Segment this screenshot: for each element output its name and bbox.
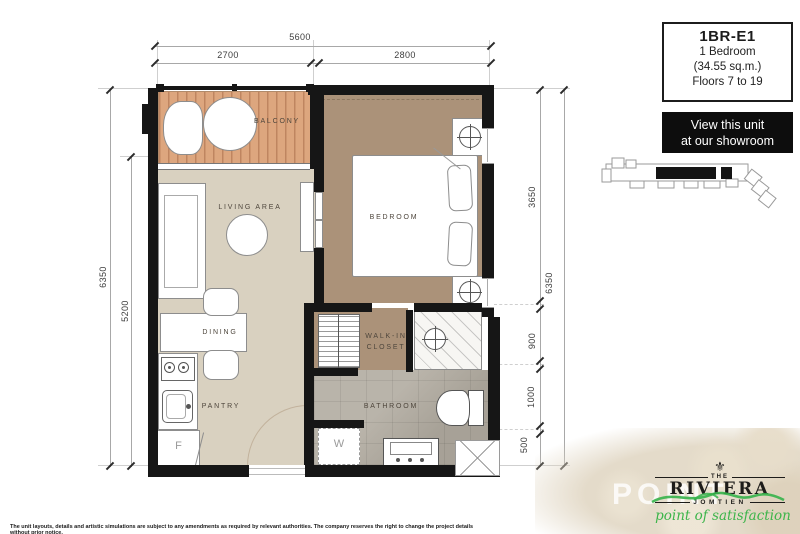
- wall: [308, 85, 494, 95]
- walkin-line1: WALK-IN: [351, 331, 421, 342]
- wardrobe-rod: [338, 314, 339, 368]
- showroom-line2: at our showroom: [662, 133, 793, 149]
- showroom-line1: View this unit: [662, 117, 793, 133]
- entry-threshold: [249, 468, 305, 475]
- ribbon-swoosh: [648, 486, 788, 508]
- dimension-line: [564, 90, 565, 467]
- lamp-icon: [459, 281, 481, 303]
- wall: [148, 88, 158, 477]
- living-label: LIVING AREA: [205, 202, 295, 213]
- wall: [148, 465, 249, 477]
- dim-right-seg1: 3650: [527, 177, 537, 217]
- building-key-plan: [600, 150, 795, 210]
- unit-info-box: 1BR-E1 1 Bedroom (34.55 sq.m.) Floors 7 …: [662, 22, 793, 102]
- dining-chair: [203, 288, 239, 316]
- extension-line: [98, 88, 148, 89]
- vanity-knob-icon: [396, 458, 400, 462]
- bathroom-label: BATHROOM: [353, 401, 429, 412]
- dim-left-outer: 6350: [98, 257, 108, 297]
- bedroom-window-mullion: [487, 278, 488, 306]
- dim-top-left: 2700: [198, 50, 258, 60]
- unit-code: 1BR-E1: [664, 28, 791, 45]
- unit-floors: Floors 7 to 19: [664, 75, 791, 90]
- tick: [127, 462, 135, 470]
- bedroom-window: [482, 278, 494, 308]
- wall: [314, 303, 372, 312]
- vanity-knob-icon: [420, 458, 424, 462]
- wall: [304, 303, 314, 370]
- dim-right-outer: 6350: [544, 263, 554, 303]
- wall: [304, 373, 314, 465]
- extension-line: [494, 88, 570, 89]
- coffee-table: [226, 214, 268, 256]
- wall: [314, 93, 324, 192]
- dimension-line: [155, 46, 491, 47]
- tv-console: [300, 182, 314, 252]
- bedroom-label: BEDROOM: [359, 212, 429, 223]
- pillow: [447, 221, 473, 266]
- dim-right-seg4: 500: [519, 425, 529, 465]
- lamp-icon: [459, 126, 481, 148]
- dimension-line: [131, 157, 132, 467]
- wall: [314, 248, 324, 310]
- pantry-label: PANTRY: [191, 401, 251, 412]
- unit-area: (34.55 sq.m.): [664, 60, 791, 75]
- walkin-closet-label: WALK-IN CLOSET: [351, 331, 421, 353]
- wall: [312, 420, 364, 428]
- walkin-line2: CLOSET: [351, 342, 421, 353]
- balcony-chair: [163, 101, 203, 155]
- logo-tagline: point of satisfaction: [648, 508, 798, 524]
- dim-right-seg3: 1000: [526, 377, 536, 417]
- sink-basin: [166, 394, 186, 419]
- bedroom-window-mullion: [487, 128, 488, 162]
- unit-type: 1 Bedroom: [664, 45, 791, 60]
- tick: [106, 462, 114, 470]
- dim-left-inner: 5200: [120, 291, 130, 331]
- bedroom-door-panel: [315, 192, 323, 220]
- bedroom-window: [482, 128, 494, 164]
- washer-label: W: [318, 438, 360, 450]
- railing-post: [232, 84, 237, 91]
- dim-right-seg2: 900: [527, 321, 537, 361]
- bedroom-door-panel: [315, 220, 323, 248]
- toilet-bowl: [436, 390, 470, 426]
- pillow: [447, 164, 473, 211]
- shower-head-icon: [424, 328, 446, 350]
- sofa-cushion: [164, 195, 198, 288]
- dim-top-total: 5600: [270, 32, 330, 42]
- stove-burner-icon: [178, 362, 189, 373]
- floorplan-page: BALCONY LIVING AREA BEDROOM DINING PANTR…: [0, 0, 800, 534]
- dimension-line: [155, 63, 491, 64]
- unit-location-marker: [721, 167, 732, 179]
- vanity-knob-icon: [408, 458, 412, 462]
- stove-burner-icon: [164, 362, 175, 373]
- showroom-banner: View this unit at our showroom: [662, 112, 793, 153]
- dimension-line: [540, 90, 541, 467]
- dining-chair: [203, 350, 239, 380]
- fridge-label: F: [157, 440, 200, 452]
- wall-stub: [142, 104, 148, 134]
- fleur-ornament-icon: ⚜: [655, 460, 785, 473]
- dimension-line: [110, 90, 111, 467]
- disclaimer-text: The unit layouts, details and artistic s…: [10, 524, 480, 534]
- dining-label: DINING: [190, 327, 250, 338]
- balcony-sliding-door: [158, 163, 310, 170]
- extension-line: [120, 156, 148, 157]
- wall: [488, 317, 500, 442]
- unit-location-marker: [656, 167, 716, 179]
- extension-line: [98, 465, 148, 466]
- balcony-label: BALCONY: [237, 116, 317, 127]
- toilet-tank: [468, 390, 484, 426]
- shaft-x-box: [455, 440, 500, 476]
- vanity-basin: [390, 442, 432, 455]
- dim-top-right: 2800: [375, 50, 435, 60]
